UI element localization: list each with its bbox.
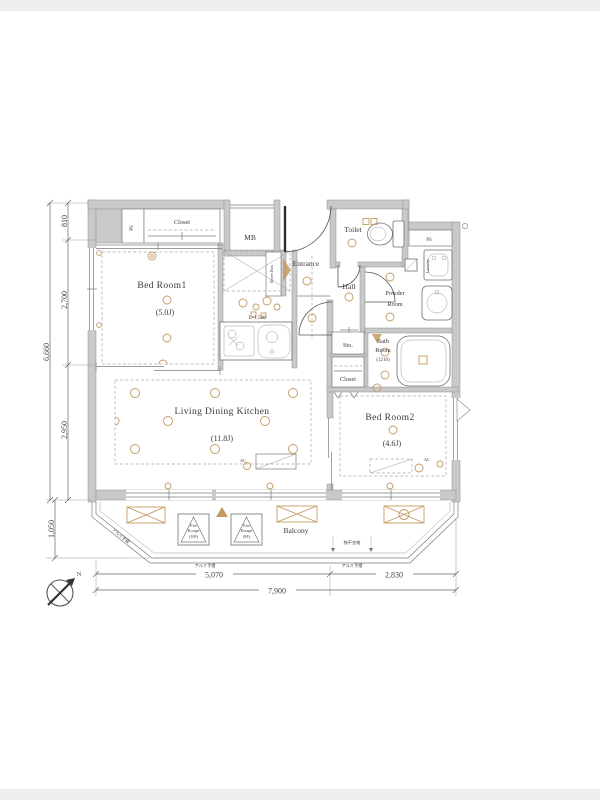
- fire-escape-1-l3: (10F): [189, 534, 199, 539]
- laundry-label: Laundry: [425, 258, 430, 273]
- dim-810: 810: [60, 215, 69, 227]
- balcony: [92, 502, 458, 563]
- ac-label-1: AC: [240, 458, 246, 463]
- bathtub: [397, 336, 450, 386]
- dim-2700: 2,700: [60, 291, 69, 309]
- powder-cabinet: [405, 259, 417, 271]
- ac-unit-ldk: [244, 454, 297, 470]
- kitchen-counter: [220, 322, 292, 360]
- fire-escape-1-l2: Escape: [188, 528, 200, 533]
- floor-plan-page: Bed Room1 (5.0J) Living Dining Kitchen (…: [0, 0, 600, 800]
- bath-label-2: Room: [375, 347, 390, 354]
- bedroom1-size: (5.0J): [156, 308, 175, 317]
- entrance-door-arc: [285, 206, 331, 252]
- ac-label-2: AC: [424, 457, 430, 462]
- powder-label-2: Room: [387, 301, 402, 308]
- closet-hall-label: Closet: [340, 376, 356, 383]
- handrail-label-left: アルミ手摺: [111, 527, 132, 546]
- dim-6660: 6,660: [42, 343, 51, 361]
- mb-label: MB: [244, 233, 256, 242]
- bedroom2-size: (4.6J): [383, 439, 402, 448]
- balcony-label: Balcony: [284, 526, 309, 535]
- sto-label: Sto.: [343, 342, 353, 349]
- ps-left-label: PS: [130, 225, 135, 231]
- ps-right-label: PS: [426, 238, 432, 243]
- bath-label-3: (1216): [376, 358, 390, 363]
- corner-marker: [462, 223, 467, 228]
- toilet-label: Toilet: [344, 225, 362, 234]
- handrail-label-bottom1: アルミ手摺: [195, 562, 216, 569]
- compass: [47, 578, 75, 606]
- kitchen-length-label: L=1,500: [248, 316, 266, 321]
- outdoor-unit-space-3: [384, 506, 424, 523]
- dim-7900: 7,900: [268, 587, 286, 596]
- dim-1050: 1,050: [47, 520, 56, 538]
- vent-marker: [457, 399, 470, 421]
- ac-unit-bedroom2: [370, 459, 443, 473]
- dim-2950: 2,950: [60, 421, 69, 439]
- fire-escape-2-l2: Escape: [241, 528, 253, 533]
- bath-label-1: Bath: [377, 338, 390, 345]
- ldk-label: Living Dining Kitchen: [175, 407, 270, 417]
- compass-n-label: N: [77, 572, 82, 578]
- laundry-pole-label: 物干金物: [344, 539, 361, 546]
- washbasin: [422, 286, 452, 320]
- bedroom2-label: Bed Room2: [365, 413, 414, 423]
- bedroom1-label: Bed Room1: [137, 281, 186, 291]
- dim-5070: 5,070: [205, 571, 223, 580]
- toilet-fixture: [363, 219, 404, 248]
- outdoor-unit-space-1: [127, 507, 165, 523]
- fire-escape-2-l3: (9F): [243, 534, 251, 539]
- hall-label: Hall: [343, 282, 356, 291]
- dim-2830: 2,830: [385, 571, 403, 580]
- powder-door: [365, 272, 395, 302]
- powder-label-1: Powder: [385, 290, 405, 297]
- ldk-size: (11.8J): [211, 434, 233, 443]
- shoes-box-label: Shoes Box: [269, 264, 274, 283]
- floor-plan-image: Bed Room1 (5.0J) Living Dining Kitchen (…: [0, 0, 600, 800]
- handrail-label-bottom2: アルミ手摺: [342, 562, 363, 569]
- entrance-label: Entrance: [293, 259, 320, 268]
- outdoor-unit-space-2: [277, 506, 317, 522]
- closet-top-label: Closet: [174, 219, 190, 226]
- balcony-marker-triangle: [216, 507, 228, 517]
